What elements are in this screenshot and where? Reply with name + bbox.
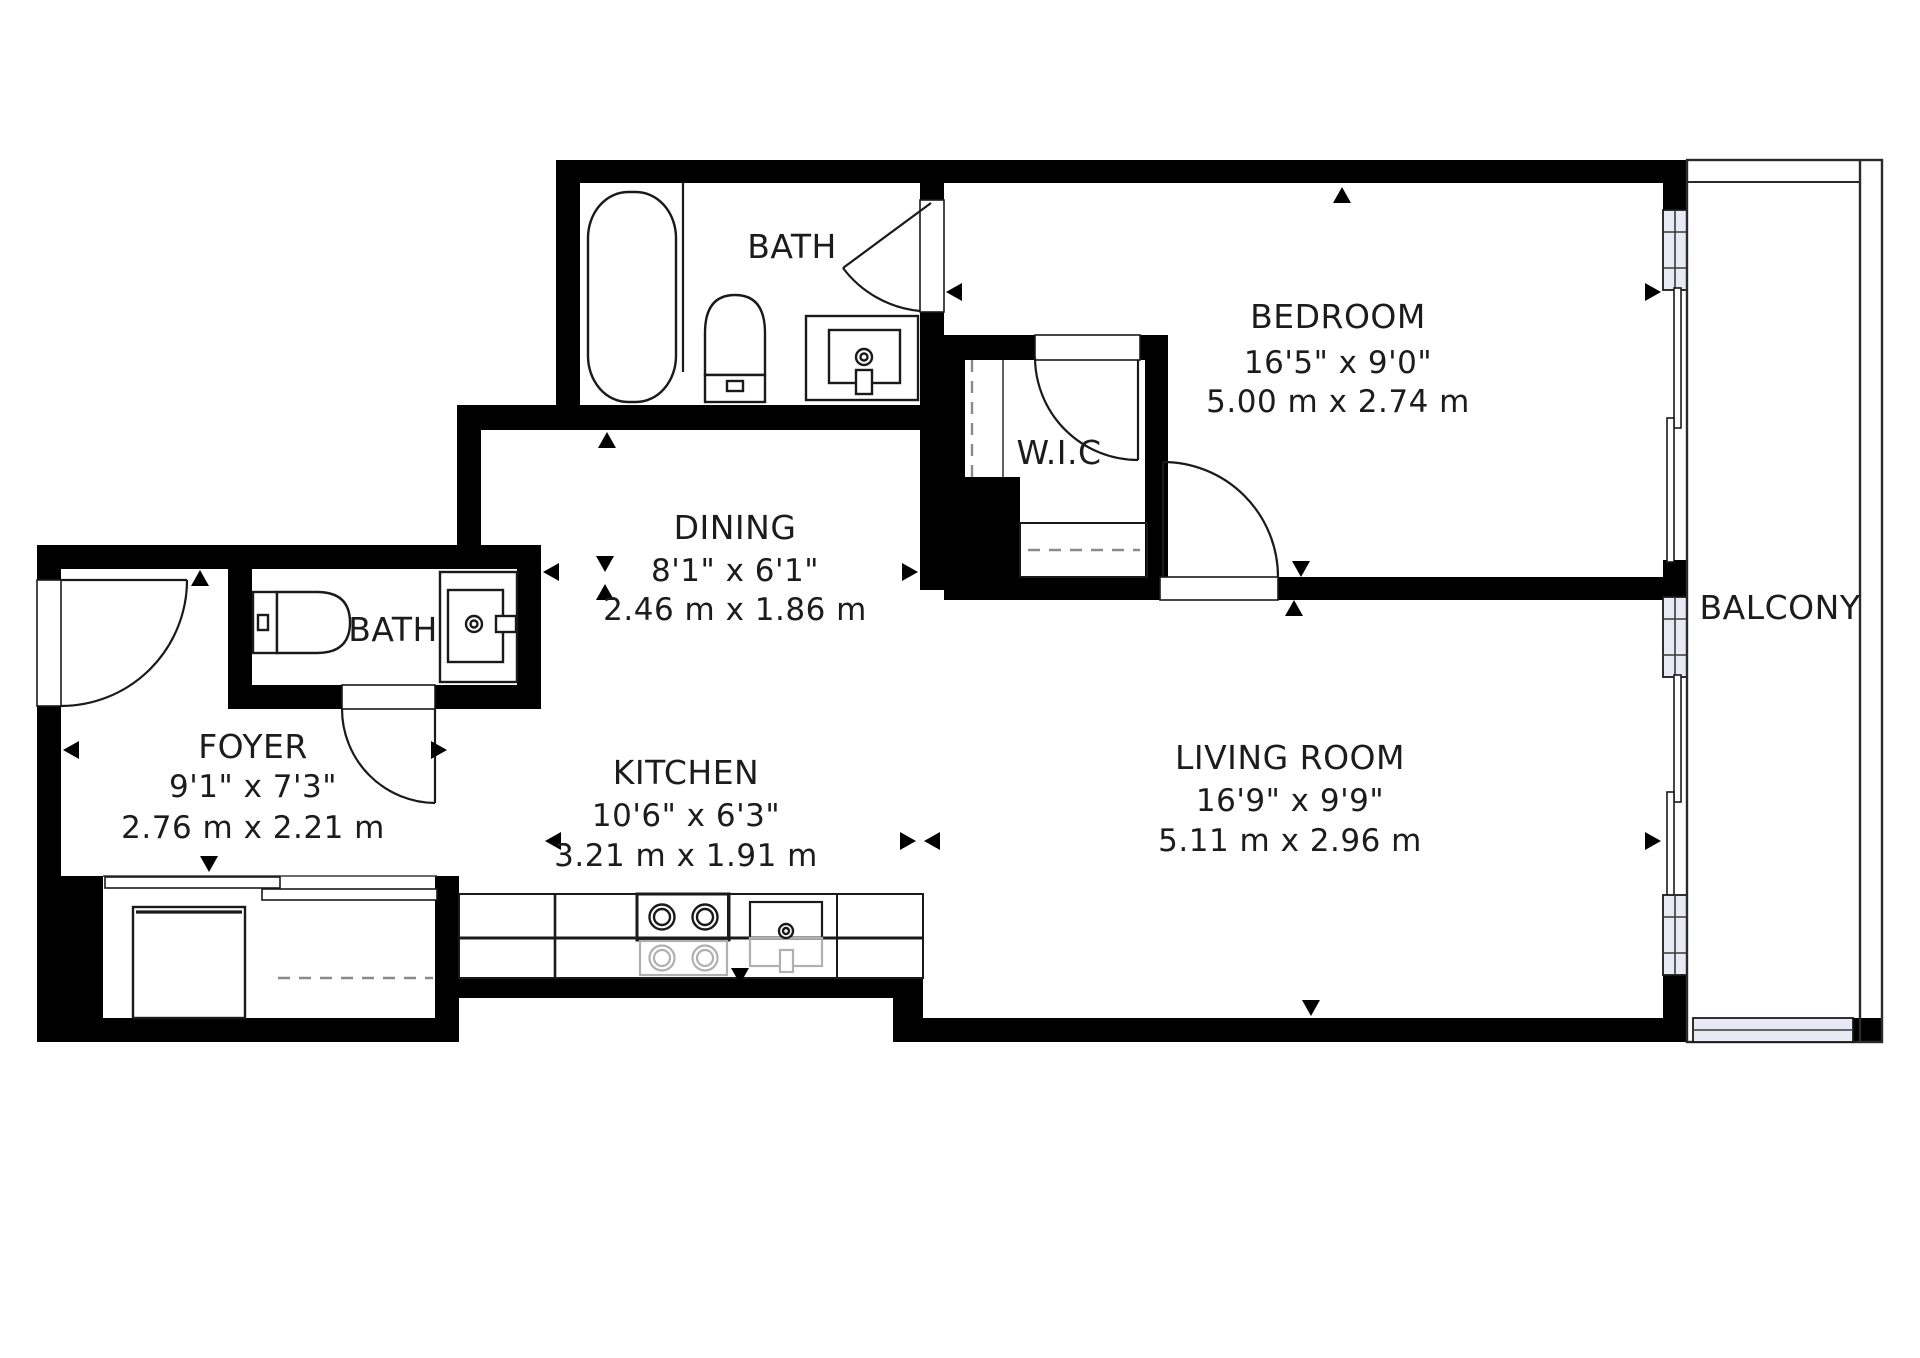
living-sliding-door: [1667, 675, 1681, 897]
foyer-label: FOYER: [198, 727, 308, 766]
foyer-size-imperial: 9'1" x 7'3": [169, 769, 337, 805]
bathtub: [588, 192, 676, 402]
wic-label: W.I.C: [1016, 433, 1101, 472]
dim-arrow-up: [1285, 600, 1303, 616]
closet-sliding-panel: [105, 877, 280, 888]
bedroom-door-frame: [1160, 577, 1278, 600]
entry-door: [61, 580, 187, 706]
kitchen-size-imperial: 10'6" x 6'3": [592, 798, 780, 834]
floor-plan-drawing: BATH BEDROOM 16'5" x 9'0" 5.00 m x 2.74 …: [0, 0, 1920, 1358]
living-room-size-metric: 5.11 m x 2.96 m: [1158, 823, 1422, 859]
bath-top-door: [843, 203, 931, 311]
dim-arrow-right: [431, 741, 447, 759]
wic-door-frame: [1035, 335, 1140, 360]
dim-arrow-down: [1302, 1000, 1320, 1016]
bath-foyer-door-frame: [342, 685, 435, 709]
entry-door-frame: [37, 580, 61, 706]
dim-arrow-up: [1333, 187, 1351, 203]
balcony-label: BALCONY: [1700, 588, 1861, 627]
dining-label: DINING: [674, 508, 797, 547]
bath-foyer-label: BATH: [348, 610, 438, 649]
living-window-lower: [1663, 895, 1687, 975]
living-room-size-imperial: 16'9" x 9'9": [1196, 783, 1384, 819]
living-room-label: LIVING ROOM: [1175, 738, 1405, 777]
dim-arrow-right: [1645, 832, 1661, 850]
bedroom-window: [1663, 210, 1687, 290]
bedroom-label: BEDROOM: [1250, 297, 1426, 336]
kitchen-counter: [459, 894, 923, 978]
dim-arrow-down: [1292, 561, 1310, 577]
dim-arrow-down: [596, 556, 614, 572]
dim-arrow-left: [63, 741, 79, 759]
toilet-bath-foyer: [253, 592, 350, 653]
bath-top-label: BATH: [747, 227, 837, 266]
bath-foyer-door: [342, 709, 435, 803]
washer: [133, 907, 245, 1018]
sink-bath-top: [806, 316, 918, 400]
bedroom-door: [1163, 462, 1278, 577]
foyer-size-metric: 2.76 m x 2.21 m: [121, 810, 385, 846]
sink-bath-foyer: [440, 572, 517, 682]
dim-arrow-left: [946, 283, 962, 301]
dining-size-imperial: 8'1" x 6'1": [651, 553, 819, 589]
dim-arrow-left: [924, 832, 940, 850]
dim-arrow-right: [1645, 283, 1661, 301]
bedroom-size-imperial: 16'5" x 9'0": [1244, 345, 1432, 381]
kitchen-label: KITCHEN: [613, 753, 760, 792]
dim-arrow-left: [543, 563, 559, 581]
bath-top-door-frame: [920, 200, 944, 312]
kitchen-size-metric: 3.21 m x 1.91 m: [554, 838, 818, 874]
foyer-closet: [103, 876, 437, 1018]
bedroom-size-metric: 5.00 m x 2.74 m: [1206, 384, 1470, 420]
dim-arrow-right: [902, 563, 918, 581]
closet-sliding-panel: [262, 889, 437, 900]
dim-arrow-up: [191, 570, 209, 586]
dim-arrow-right: [900, 832, 916, 850]
dining-size-metric: 2.46 m x 1.86 m: [603, 592, 867, 628]
toilet-bath-top: [705, 295, 765, 402]
dim-arrow-up: [598, 432, 616, 448]
floor-plan-page: BATH BEDROOM 16'5" x 9'0" 5.00 m x 2.74 …: [0, 0, 1920, 1358]
living-window-upper: [1663, 597, 1687, 677]
bedroom-sliding-door: [1667, 288, 1681, 562]
dim-arrow-down: [200, 856, 218, 872]
